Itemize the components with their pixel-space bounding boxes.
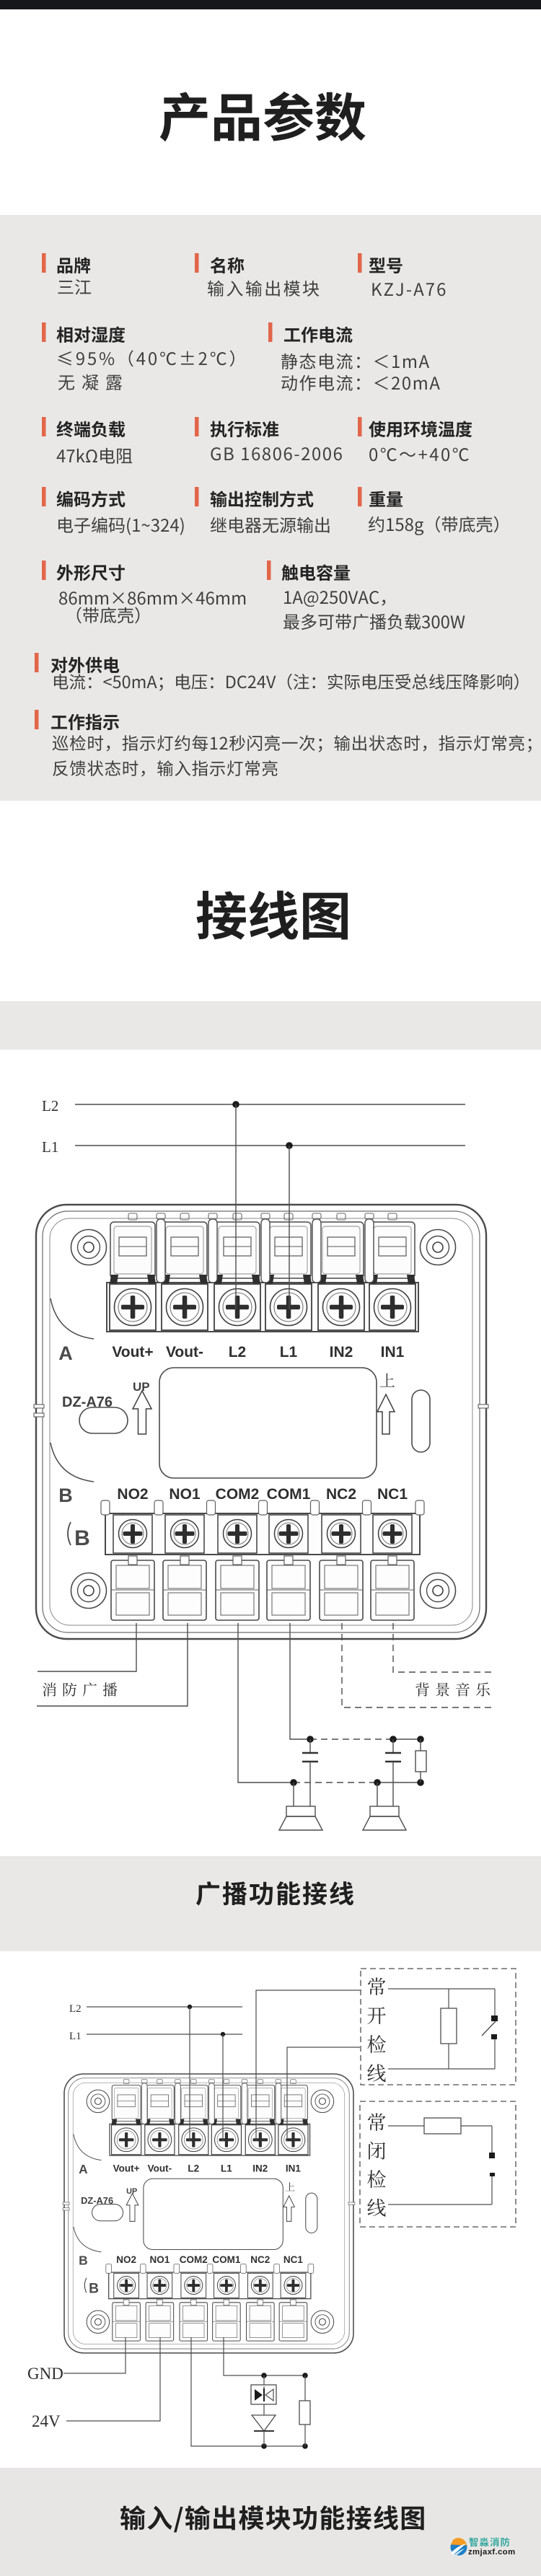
svg-text:Vout-: Vout- [148,2163,172,2174]
svg-text:NO2: NO2 [116,2254,136,2265]
svg-text:COM1: COM1 [267,1486,311,1503]
svg-text:IN1: IN1 [381,1344,405,1360]
svg-text:Vout-: Vout- [166,1344,203,1360]
svg-text:Vout+: Vout+ [112,1344,153,1360]
svg-text:B: B [74,1526,90,1550]
svg-text:zmjaxf.com: zmjaxf.com [468,2548,516,2557]
svg-text:A: A [79,2162,88,2176]
svg-text:COM2: COM2 [216,1486,260,1503]
svg-text:B: B [89,2281,99,2296]
svg-text:NO2: NO2 [117,1486,148,1503]
svg-text:NC2: NC2 [250,2254,270,2265]
svg-text:IN1: IN1 [286,2163,301,2174]
svg-text:L2: L2 [69,2003,82,2015]
svg-text:L2: L2 [42,1097,58,1115]
svg-text:L1: L1 [42,1138,58,1156]
svg-text:L2: L2 [229,1344,247,1360]
svg-text:GND: GND [27,2365,63,2383]
svg-text:IN2: IN2 [330,1344,353,1360]
svg-text:L1: L1 [69,2031,82,2042]
svg-text:IN2: IN2 [252,2163,268,2174]
svg-text:L1: L1 [221,2163,232,2174]
svg-text:B: B [79,2254,88,2268]
svg-text:A: A [58,1342,73,1364]
svg-text:Vout+: Vout+ [113,2163,140,2174]
svg-text:L2: L2 [188,2163,199,2174]
svg-text:B: B [58,1485,73,1506]
svg-text:COM1: COM1 [212,2254,240,2265]
svg-text:NO1: NO1 [169,1486,201,1503]
svg-text:NO1: NO1 [150,2254,170,2265]
svg-text:COM2: COM2 [180,2254,208,2265]
svg-text:NC1: NC1 [377,1486,408,1503]
svg-text:NC2: NC2 [326,1486,356,1503]
svg-text:L1: L1 [280,1344,298,1360]
svg-text:24V: 24V [32,2412,61,2430]
svg-text:NC1: NC1 [283,2254,303,2265]
